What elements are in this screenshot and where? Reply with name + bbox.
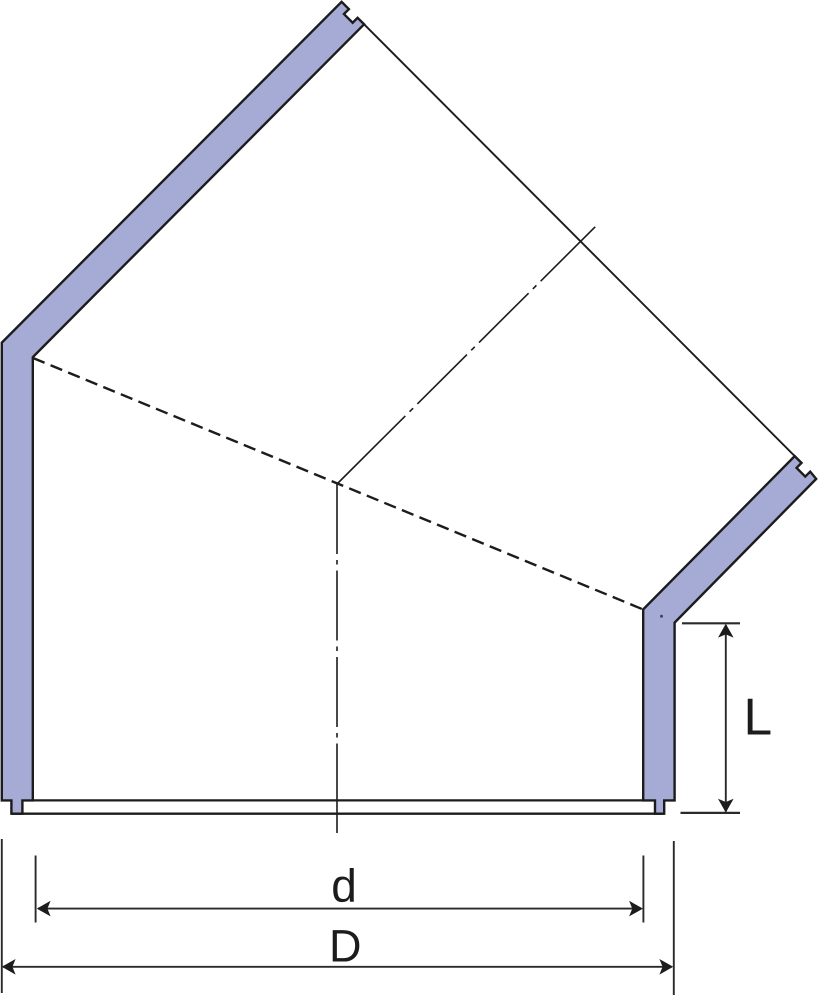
svg-text:d: d [331, 860, 357, 912]
svg-text:D: D [329, 921, 362, 972]
svg-text:L: L [744, 688, 773, 746]
